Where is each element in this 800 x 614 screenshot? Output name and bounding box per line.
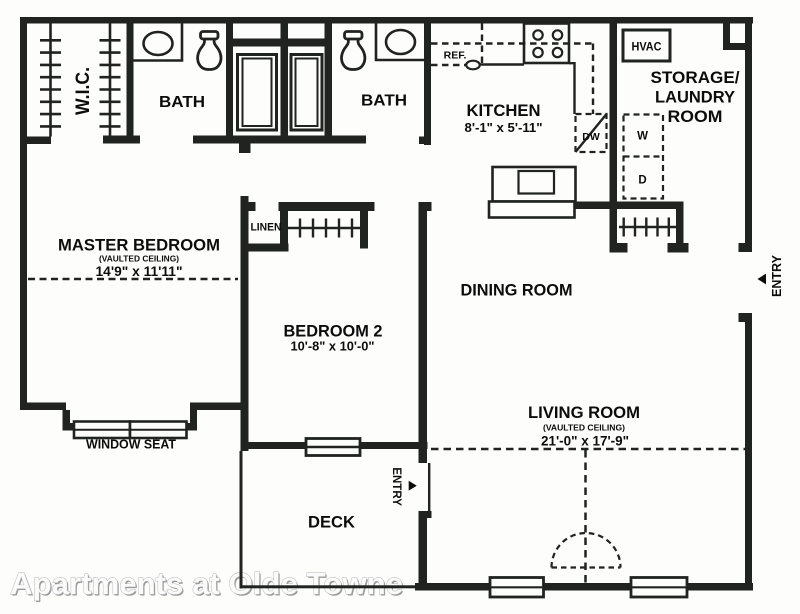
svg-text:DINING ROOM: DINING ROOM [461,282,573,300]
svg-text:STORAGE/: STORAGE/ [651,68,740,87]
svg-text:LIVING ROOM: LIVING ROOM [528,403,640,422]
svg-text:ROOM: ROOM [668,107,723,126]
svg-text:WINDOW SEAT: WINDOW SEAT [86,438,176,452]
svg-text:10'-8" x 10'-0": 10'-8" x 10'-0" [291,339,375,354]
svg-text:HVAC: HVAC [632,42,662,54]
svg-text:REF.: REF. [444,50,467,62]
svg-text:DECK: DECK [308,514,355,532]
svg-text:Apartments at Olde Towne: Apartments at Olde Towne [10,566,403,601]
svg-text:W: W [637,131,648,143]
svg-text:(VAULTED CEILING): (VAULTED CEILING) [543,423,625,433]
svg-text:MASTER BEDROOM: MASTER BEDROOM [58,236,220,255]
svg-text:D: D [638,175,646,187]
svg-text:ENTRY: ENTRY [390,467,402,506]
svg-text:ENTRY: ENTRY [770,254,784,297]
svg-text:DW: DW [582,131,600,143]
svg-text:W.I.C.: W.I.C. [72,67,94,115]
svg-text:LAUNDRY: LAUNDRY [655,88,736,107]
svg-text:(VAULTED CEILING): (VAULTED CEILING) [99,254,179,264]
svg-text:LINEN: LINEN [251,222,282,234]
svg-text:KITCHEN: KITCHEN [467,102,541,120]
svg-text:8'-1" x 5'-11": 8'-1" x 5'-11" [465,120,543,135]
svg-text:BATH: BATH [159,94,205,111]
svg-text:14'9" x 11'11": 14'9" x 11'11" [96,264,183,279]
svg-text:BATH: BATH [361,93,407,110]
svg-text:21'-0" x 17'-9": 21'-0" x 17'-9" [541,434,629,449]
